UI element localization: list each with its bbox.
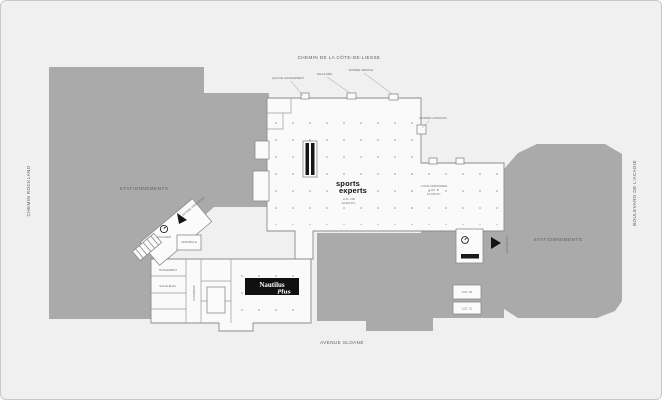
site-plan-canvas: CHEMIN DE LA CÔTE-DE-LIESSE AVENUE SLOAN… — [0, 0, 662, 400]
sports-experts-area: 42,000 P.C. — [342, 201, 357, 205]
nautilus-logo-script: Plus — [276, 290, 290, 296]
stair-label-west: ESCALIER — [157, 235, 171, 239]
sports-experts-logo-line2: experts — [339, 186, 367, 195]
roof-unit-3 — [389, 94, 398, 100]
site-plan-svg: CHEMIN DE LA CÔTE-DE-LIESSE AVENUE SLOAN… — [1, 1, 662, 400]
escalator-bar-2 — [311, 143, 315, 175]
nautilus-logo-name: Nautilus — [259, 281, 285, 289]
roof-unit-4 — [417, 125, 426, 134]
east-kiosk-2-label: LOC. 51 — [462, 307, 473, 311]
street-label-sloane: AVENUE SLOANE — [320, 340, 364, 345]
service-room-2 — [253, 171, 269, 201]
entrance-info-label: VESTIBULE — [181, 240, 197, 244]
south-corridor-label: CORRIDOR — [192, 285, 196, 300]
roof-unit-6 — [456, 158, 464, 164]
callout-label: SALLE MÉC. — [317, 71, 334, 76]
parking-label-east: STATIONNEMENTS — [534, 237, 583, 242]
parking-lot-east — [504, 144, 622, 318]
escalator-outline — [303, 141, 317, 177]
street-label-rockland: CHEMIN ROCKLAND — [26, 165, 31, 216]
parking-label-west: STATIONNEMENTS — [120, 186, 169, 191]
callout-label: ENTRÉE SERVICE — [349, 67, 373, 72]
roof-unit-1 — [301, 93, 309, 99]
street-label-acadie: BOULEVARD DE L'ACADIE — [632, 160, 637, 226]
nautilus-unit[interactable]: Nautilus Plus — [245, 278, 299, 296]
roof-unit-5 — [429, 158, 437, 164]
south-room-label-elec: SALLE ÉLEC. — [159, 283, 177, 288]
callout-label: ENTRÉE LIVRAISON — [419, 115, 446, 120]
east-kiosk-1-label: LOC. 50 — [462, 290, 473, 294]
south-room-block — [207, 287, 225, 313]
wing-label-area: 10,765 P.C. — [427, 192, 442, 196]
column-grid-main — [275, 107, 415, 225]
service-room-1 — [255, 141, 269, 159]
south-room-label-storage: RANGEMENT — [159, 268, 177, 272]
roof-unit-2 — [347, 93, 356, 99]
street-label-cote-de-liesse: CHEMIN DE LA CÔTE-DE-LIESSE — [298, 54, 381, 60]
east-entrance-label: ENTRÉE EST — [504, 235, 509, 253]
callout-label: QUAI DE CHARGEMENT — [272, 76, 304, 80]
escalator-bar-1 — [306, 143, 310, 175]
east-vestibule-mat — [461, 254, 479, 259]
column-grid-wing — [409, 169, 499, 225]
